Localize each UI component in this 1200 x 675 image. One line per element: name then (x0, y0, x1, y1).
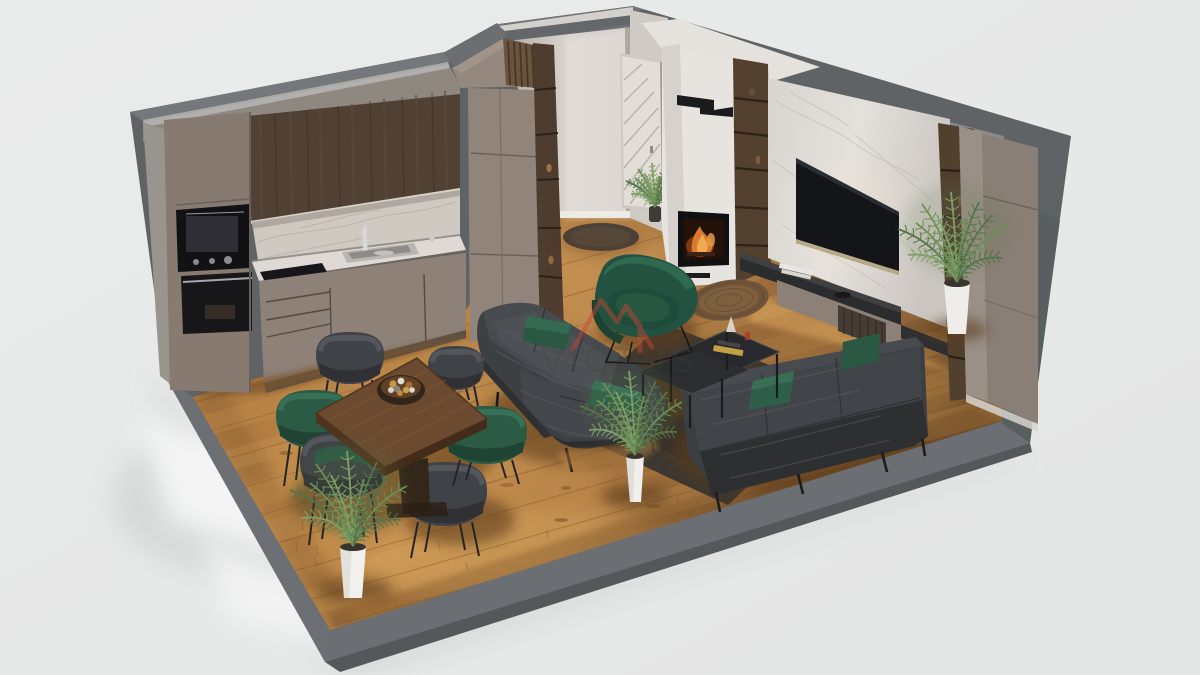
svg-text:VICTUS: VICTUS (541, 341, 699, 380)
